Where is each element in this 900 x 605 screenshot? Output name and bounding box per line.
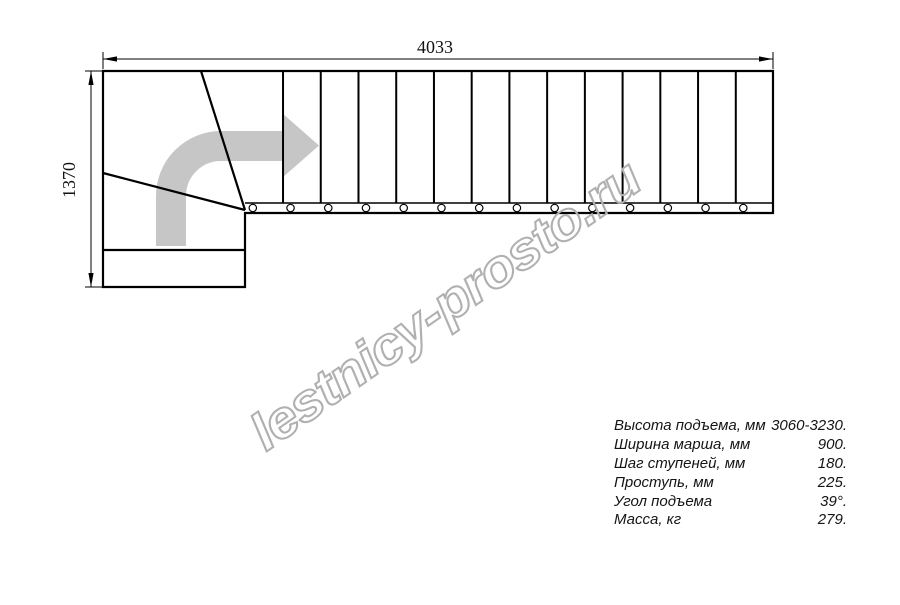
watermark-text: lestnicy-prosto.ru [240, 149, 652, 462]
step-lines [283, 71, 736, 203]
fastener-circles [249, 204, 747, 211]
fastener-circle [664, 204, 671, 211]
spec-row: Шаг ступеней, мм180. [614, 455, 847, 474]
dim-arrow-down [88, 273, 93, 287]
spec-row: Проступь, мм225. [614, 474, 847, 493]
dimension-width-label: 1370 [59, 162, 79, 198]
fastener-circle [325, 204, 332, 211]
spec-row: Высота подъема, мм3060-3230. [614, 417, 847, 436]
spec-row: Угол подъема39°. [614, 493, 847, 512]
spec-label: Высота подъема, мм [614, 417, 766, 436]
spec-row: Масса, кг279. [614, 511, 847, 530]
fastener-circle [400, 204, 407, 211]
spec-value: 225. [818, 474, 847, 493]
dimension-left [85, 71, 102, 287]
spec-value: 279. [818, 511, 847, 530]
fastener-circle [249, 204, 256, 211]
spec-value: 180. [818, 455, 847, 474]
fastener-circle [702, 204, 709, 211]
fastener-circle [287, 204, 294, 211]
dim-arrow-up [88, 71, 93, 85]
spec-value: 900. [818, 436, 847, 455]
dim-arrow-left [103, 56, 117, 61]
spec-label: Масса, кг [614, 511, 681, 530]
fastener-circle [438, 204, 445, 211]
dim-arrow-right [759, 56, 773, 61]
spec-row: Ширина марша, мм900. [614, 436, 847, 455]
fastener-circle [513, 204, 520, 211]
spec-table: Высота подъема, мм3060-3230.Ширина марша… [614, 417, 847, 530]
fastener-circle [362, 204, 369, 211]
dimension-length-label: 4033 [417, 37, 453, 57]
stair-outline [103, 71, 773, 287]
spec-label: Угол подъема [614, 493, 712, 512]
fastener-circle [475, 204, 482, 211]
spec-value: 39°. [820, 493, 847, 512]
spec-label: Шаг ступеней, мм [614, 455, 745, 474]
spec-label: Проступь, мм [614, 474, 714, 493]
spec-label: Ширина марша, мм [614, 436, 750, 455]
spec-value: 3060-3230. [771, 417, 847, 436]
fastener-circle [740, 204, 747, 211]
